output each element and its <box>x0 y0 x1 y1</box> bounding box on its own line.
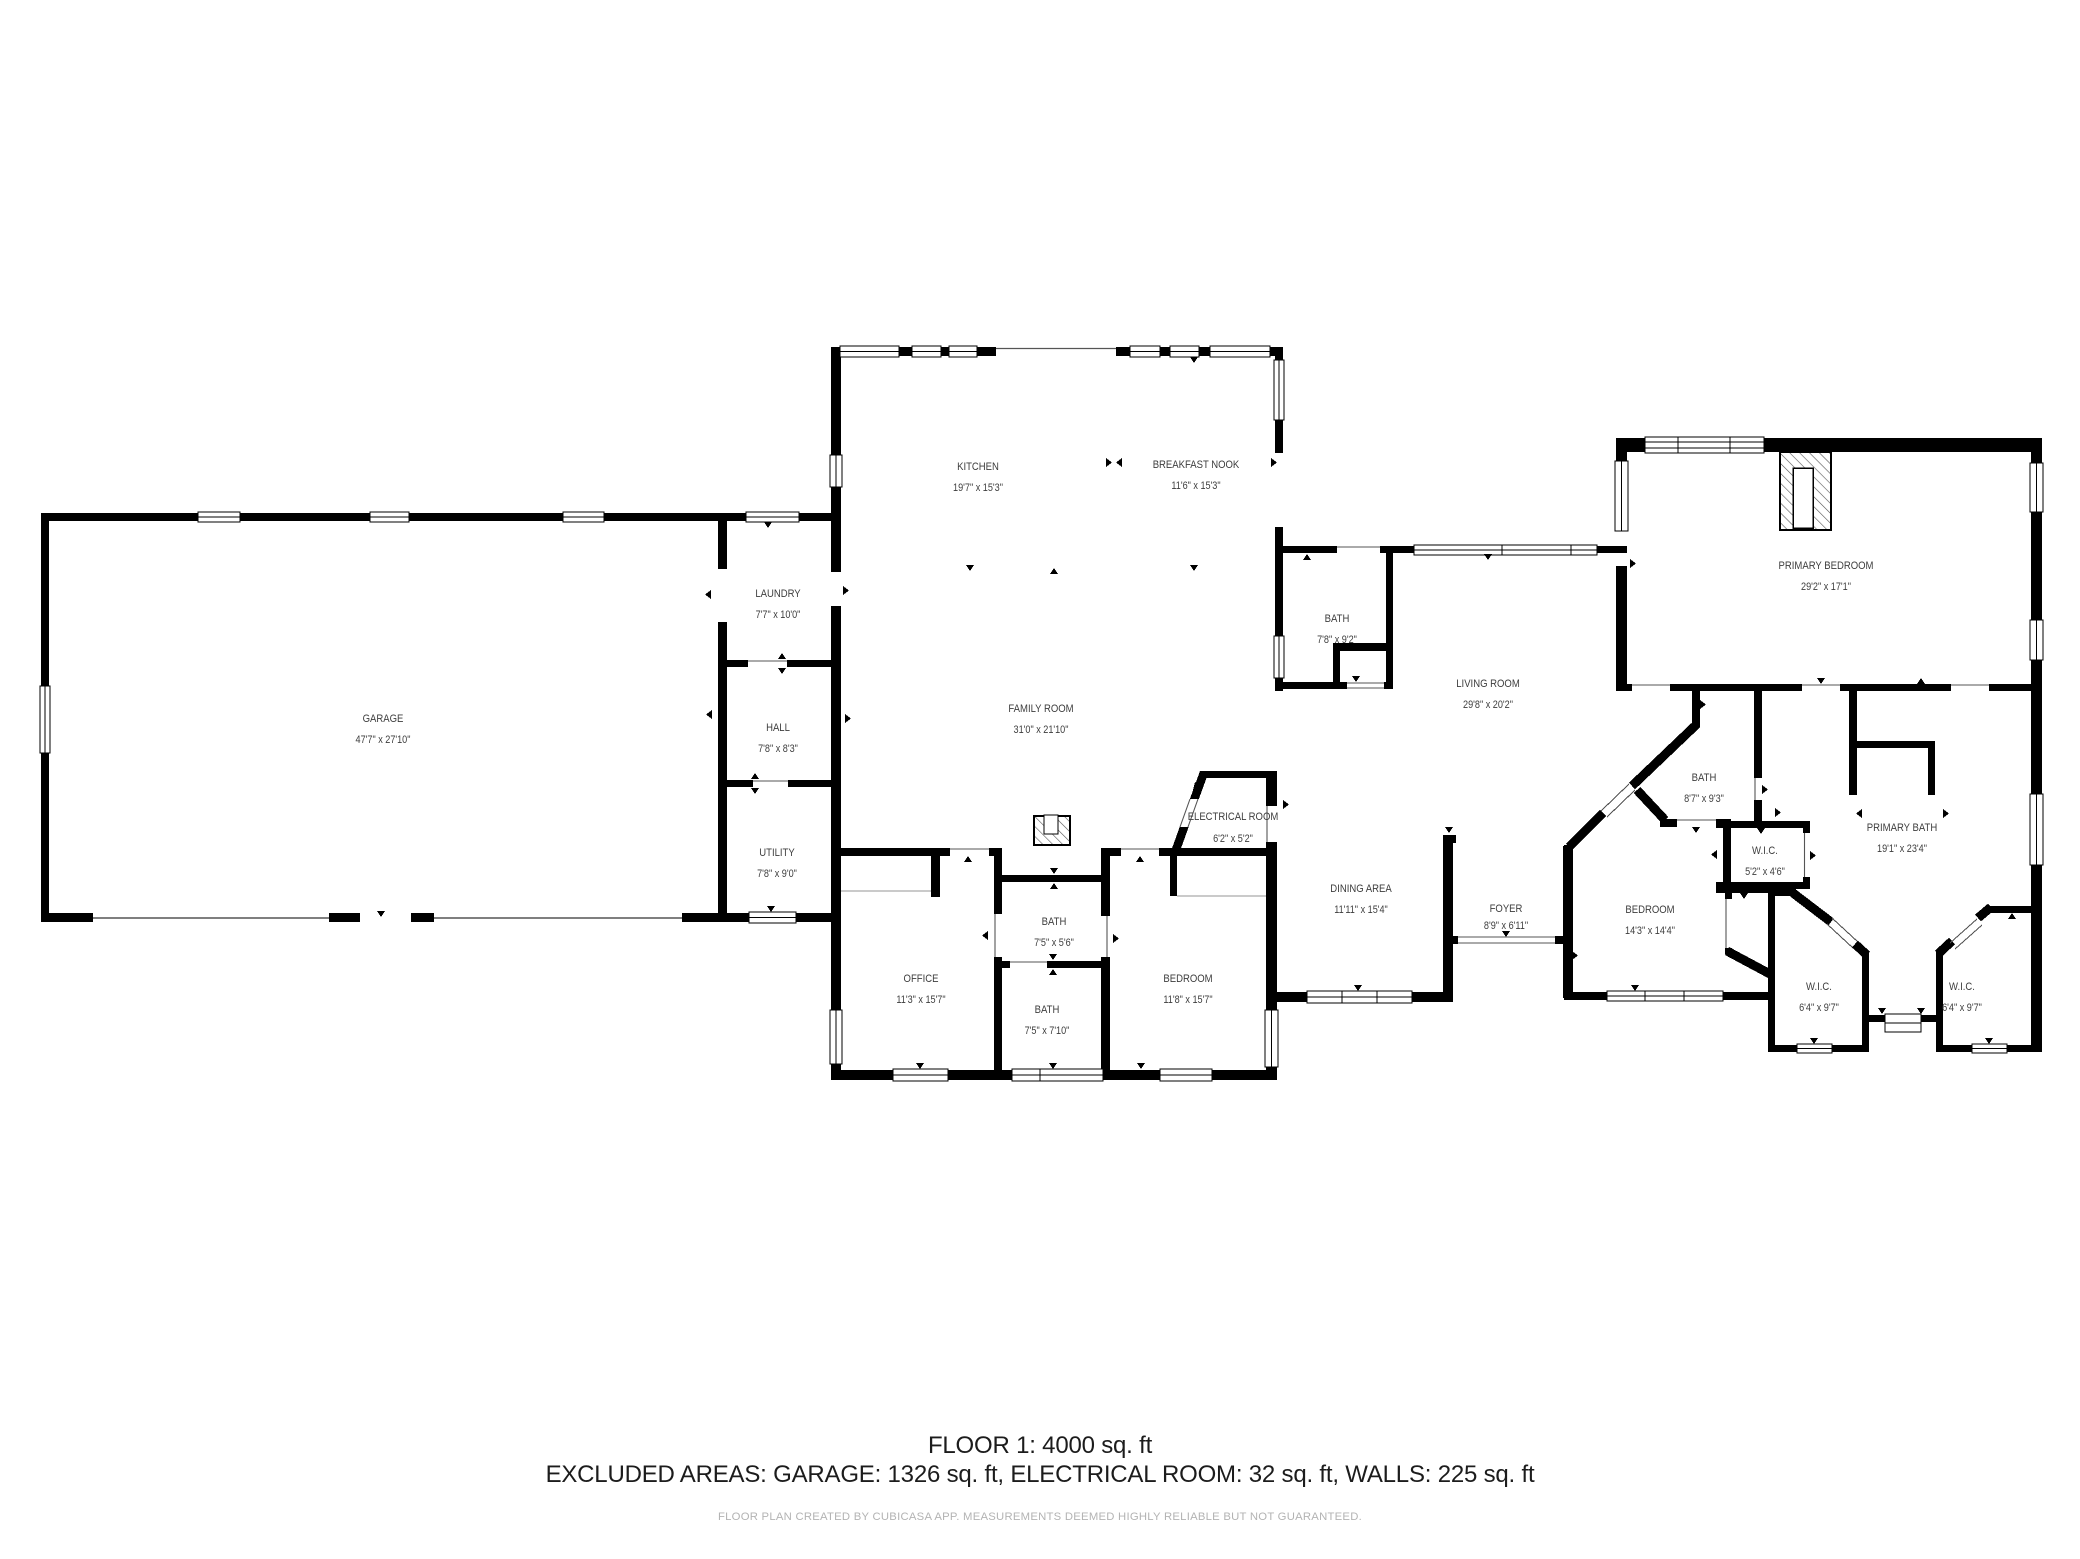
svg-text:6'2" x 5'2": 6'2" x 5'2" <box>1213 833 1253 845</box>
svg-text:DINING AREA: DINING AREA <box>1330 883 1392 895</box>
svg-text:14'3" x 14'4": 14'3" x 14'4" <box>1625 925 1675 937</box>
svg-text:W.I.C.: W.I.C. <box>1752 845 1778 857</box>
svg-text:OFFICE: OFFICE <box>904 973 939 985</box>
svg-text:19'7" x 15'3": 19'7" x 15'3" <box>953 482 1003 494</box>
svg-text:BATH: BATH <box>1692 772 1717 784</box>
svg-text:8'7" x 9'3": 8'7" x 9'3" <box>1684 793 1724 805</box>
svg-text:LIVING ROOM: LIVING ROOM <box>1456 678 1520 690</box>
svg-text:8'9" x 6'11": 8'9" x 6'11" <box>1484 920 1528 932</box>
svg-text:KITCHEN: KITCHEN <box>957 461 999 473</box>
svg-text:UTILITY: UTILITY <box>759 847 795 859</box>
svg-text:7'5" x 7'10": 7'5" x 7'10" <box>1025 1025 1070 1037</box>
svg-text:BEDROOM: BEDROOM <box>1163 973 1212 985</box>
svg-text:PRIMARY BATH: PRIMARY BATH <box>1867 822 1937 834</box>
svg-text:7'7" x 10'0": 7'7" x 10'0" <box>756 609 801 621</box>
svg-text:6'4" x 9'7": 6'4" x 9'7" <box>1799 1002 1839 1014</box>
svg-text:FOYER: FOYER <box>1490 903 1523 915</box>
svg-text:LAUNDRY: LAUNDRY <box>755 588 801 600</box>
svg-text:BATH: BATH <box>1325 613 1350 625</box>
svg-text:5'2" x 4'6": 5'2" x 4'6" <box>1745 866 1785 878</box>
svg-text:47'7" x 27'10": 47'7" x 27'10" <box>356 734 411 746</box>
svg-text:6'4" x 9'7": 6'4" x 9'7" <box>1942 1002 1982 1014</box>
svg-text:W.I.C.: W.I.C. <box>1949 981 1975 993</box>
svg-text:W.I.C.: W.I.C. <box>1806 981 1832 993</box>
svg-text:7'5" x 5'6": 7'5" x 5'6" <box>1034 937 1074 949</box>
svg-text:7'8" x 9'0": 7'8" x 9'0" <box>757 868 797 880</box>
svg-text:11'8" x 15'7": 11'8" x 15'7" <box>1163 994 1212 1006</box>
svg-text:7'8" x 8'3": 7'8" x 8'3" <box>758 743 798 755</box>
svg-text:BATH: BATH <box>1035 1004 1060 1016</box>
svg-text:BATH: BATH <box>1042 916 1067 928</box>
svg-text:11'6" x 15'3": 11'6" x 15'3" <box>1171 480 1220 492</box>
svg-text:GARAGE: GARAGE <box>363 713 404 725</box>
svg-text:31'0" x 21'10": 31'0" x 21'10" <box>1014 724 1069 736</box>
svg-text:29'8" x 20'2": 29'8" x 20'2" <box>1463 699 1513 711</box>
svg-text:ELECTRICAL ROOM: ELECTRICAL ROOM <box>1188 811 1279 823</box>
svg-text:11'11" x 15'4": 11'11" x 15'4" <box>1334 904 1388 916</box>
svg-text:FLOOR 1: 4000 sq. ft: FLOOR 1: 4000 sq. ft <box>928 1432 1153 1459</box>
svg-text:EXCLUDED AREAS: GARAGE: 1326 s: EXCLUDED AREAS: GARAGE: 1326 sq. ft, ELE… <box>546 1461 1535 1488</box>
svg-text:11'3" x 15'7": 11'3" x 15'7" <box>896 994 945 1006</box>
svg-text:29'2" x 17'1": 29'2" x 17'1" <box>1801 581 1851 593</box>
svg-text:19'1" x 23'4": 19'1" x 23'4" <box>1877 843 1927 855</box>
svg-text:7'8" x 9'2": 7'8" x 9'2" <box>1317 634 1357 646</box>
svg-text:BREAKFAST NOOK: BREAKFAST NOOK <box>1153 459 1240 471</box>
svg-text:PRIMARY BEDROOM: PRIMARY BEDROOM <box>1779 560 1874 572</box>
svg-text:HALL: HALL <box>766 722 790 734</box>
svg-text:FLOOR PLAN CREATED BY CUBICASA: FLOOR PLAN CREATED BY CUBICASA APP. MEAS… <box>718 1511 1362 1523</box>
svg-text:BEDROOM: BEDROOM <box>1625 904 1674 916</box>
svg-text:FAMILY ROOM: FAMILY ROOM <box>1008 703 1073 715</box>
